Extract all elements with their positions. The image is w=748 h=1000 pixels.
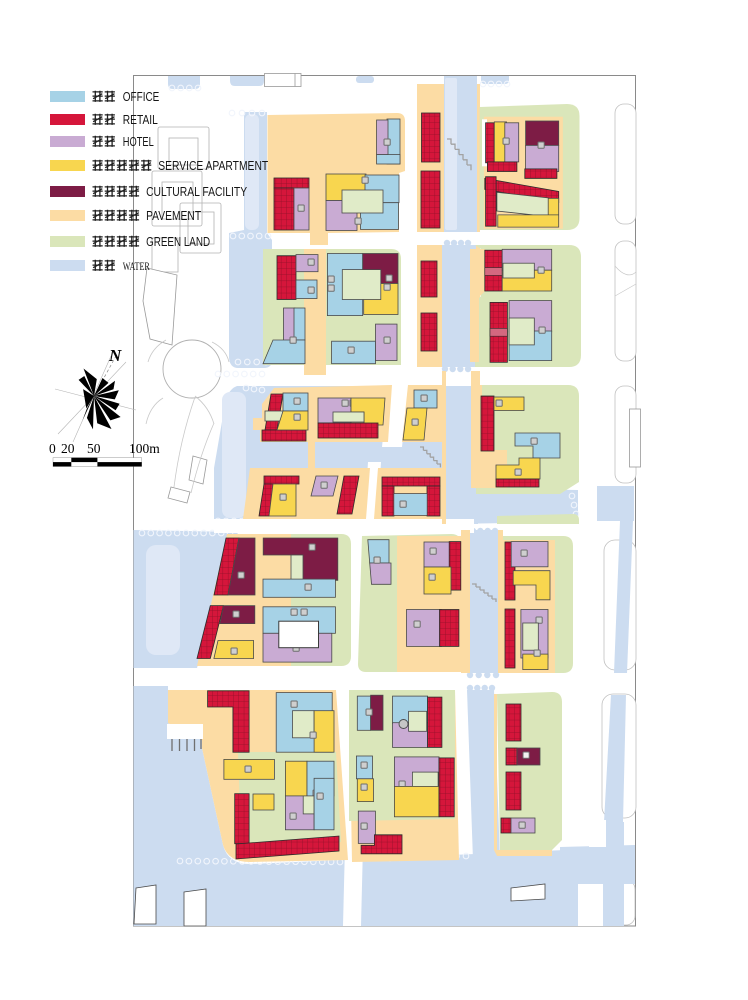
- svg-text:CULTURAL FACILITY: CULTURAL FACILITY: [146, 184, 247, 199]
- svg-text:RETAIL: RETAIL: [123, 112, 158, 127]
- svg-text:HOTEL: HOTEL: [123, 134, 154, 149]
- svg-text:GREEN LAND: GREEN LAND: [146, 234, 210, 249]
- svg-text:SERVICE APARTMENT: SERVICE APARTMENT: [158, 158, 268, 173]
- svg-text:0: 0: [49, 441, 56, 456]
- svg-text:20: 20: [61, 441, 75, 456]
- svg-text:100m: 100m: [129, 441, 160, 456]
- svg-text:N: N: [108, 346, 122, 365]
- svg-text:PAVEMENT: PAVEMENT: [146, 208, 201, 223]
- svg-text:50: 50: [87, 441, 101, 456]
- svg-text:WATER: WATER: [123, 259, 150, 273]
- svg-text:OFFICE: OFFICE: [123, 89, 160, 104]
